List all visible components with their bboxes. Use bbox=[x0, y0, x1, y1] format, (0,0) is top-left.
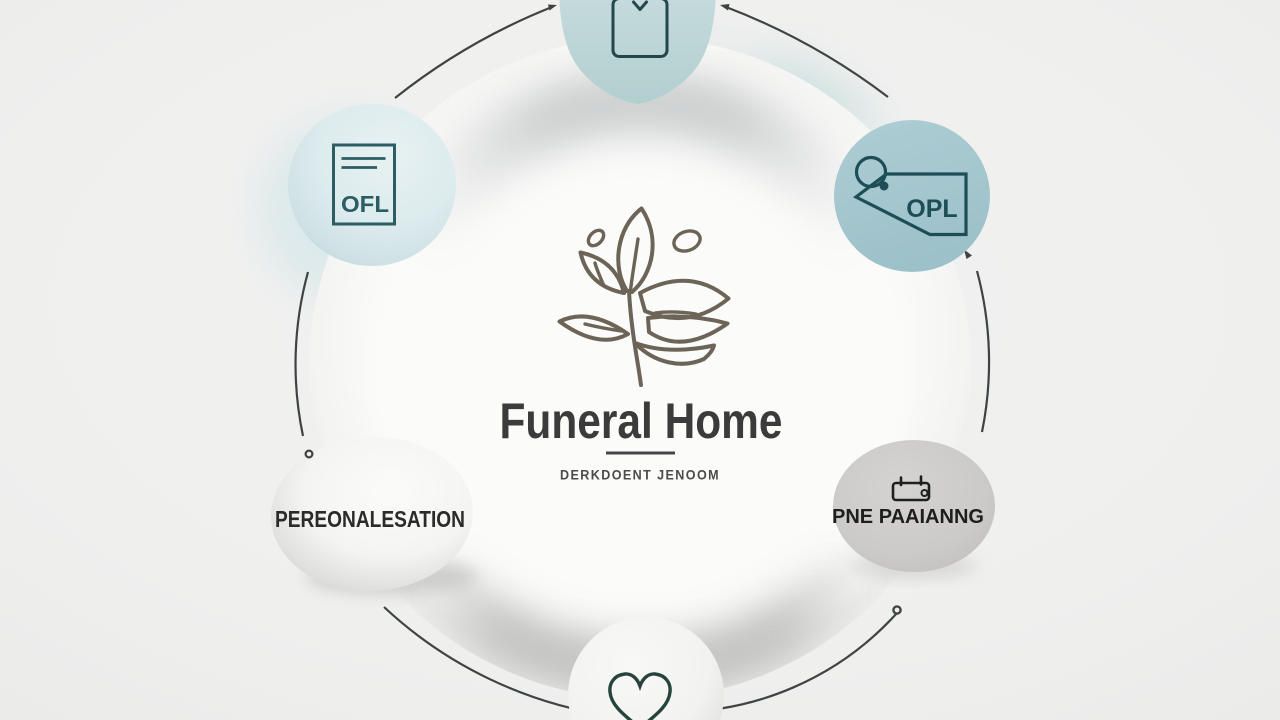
svg-text:OFL: OFL bbox=[341, 191, 389, 217]
svg-text:PNE PAAIANNG: PNE PAAIANNG bbox=[832, 505, 984, 528]
svg-text:Funeral Home: Funeral Home bbox=[500, 393, 783, 449]
svg-text:DERKDOENT JENOOM: DERKDOENT JENOOM bbox=[560, 468, 720, 483]
svg-text:OPL: OPL bbox=[906, 195, 957, 223]
svg-text:PEREONALESATION: PEREONALESATION bbox=[275, 506, 465, 532]
